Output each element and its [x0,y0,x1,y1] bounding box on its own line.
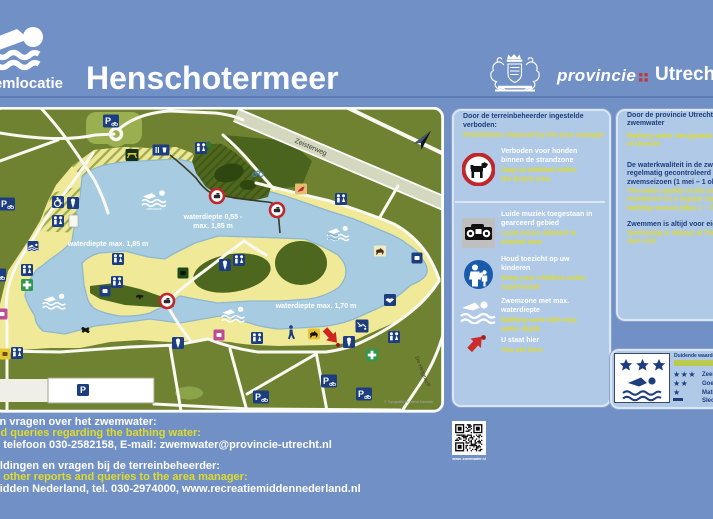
svg-text:P: P [358,389,364,399]
svg-text:P: P [255,392,261,402]
svg-text:waterdiepte max. 1,70 m: waterdiepte max. 1,70 m [275,303,357,310]
svg-text:waterdiepte max. 1,85 m: waterdiepte max. 1,85 m [67,241,149,248]
svg-text:waterdiepte 0,55 -: waterdiepte 0,55 - [183,214,243,221]
svg-text:P: P [1,199,7,209]
svg-text:P: P [323,376,329,386]
svg-text:© Topografische Dienst Kadaste: © Topografische Dienst Kadaster [384,400,434,404]
svg-text:max. 1,85 m: max. 1,85 m [193,223,233,230]
svg-text:P: P [105,116,111,126]
svg-text:P: P [80,385,86,395]
svg-text:zwemzone: zwemzone [146,207,161,211]
